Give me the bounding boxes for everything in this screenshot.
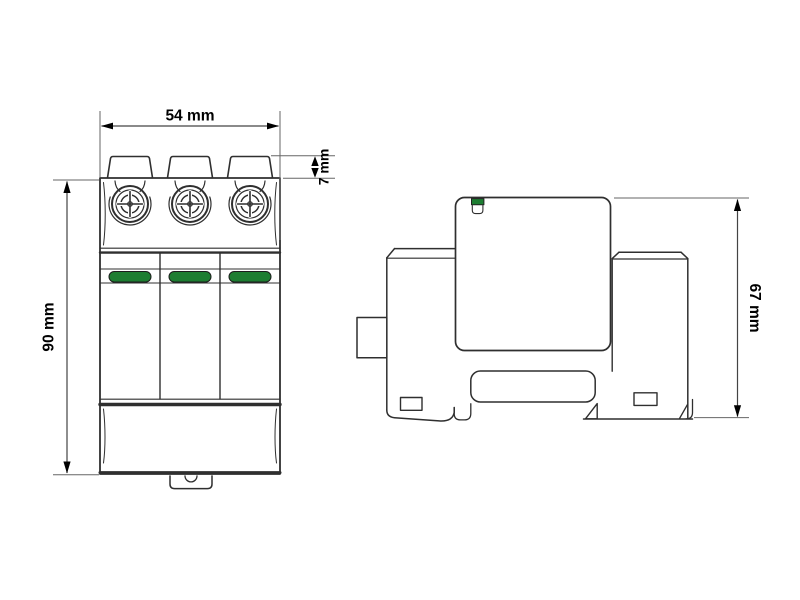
technical-drawing-page: 54 mm 7 mm 90 mm (0, 0, 800, 600)
arrowhead-down (734, 405, 741, 417)
status-indicator-window (472, 199, 484, 205)
base-window-left (401, 398, 423, 411)
arrowhead-down (63, 462, 70, 474)
arrowhead-up (63, 181, 70, 193)
dimension-height: 90 mm (41, 180, 100, 475)
terminal-height-dimension-label: 7 mm (316, 149, 332, 186)
surge-protector-dimension-drawing: 54 mm 7 mm 90 mm (0, 0, 800, 600)
width-dimension-label: 54 mm (165, 108, 214, 125)
arrowhead-right (267, 123, 279, 130)
status-indicator-window (109, 272, 151, 283)
din-claw-left (454, 404, 471, 420)
arrowhead-left (101, 123, 113, 130)
height-dimension-label: 90 mm (41, 302, 58, 351)
din-release-tab (170, 476, 212, 489)
side-view-drawing (357, 198, 693, 421)
din-slide-clip (686, 400, 693, 419)
front-view-drawing (100, 157, 280, 489)
status-indicator-windows (109, 272, 271, 283)
din-rail-channel (471, 371, 595, 402)
arrowhead-up (734, 199, 741, 211)
depth-dimension-label: 67 mm (746, 283, 763, 332)
plug-in-module (456, 198, 611, 351)
status-indicator-window (229, 272, 271, 283)
side-left-tower (387, 249, 456, 410)
side-terminal-lug (357, 318, 387, 358)
status-indicator-window (169, 272, 211, 283)
din-claw-right (586, 404, 598, 419)
base-window-right (634, 393, 657, 406)
side-status-indicator (472, 199, 484, 214)
